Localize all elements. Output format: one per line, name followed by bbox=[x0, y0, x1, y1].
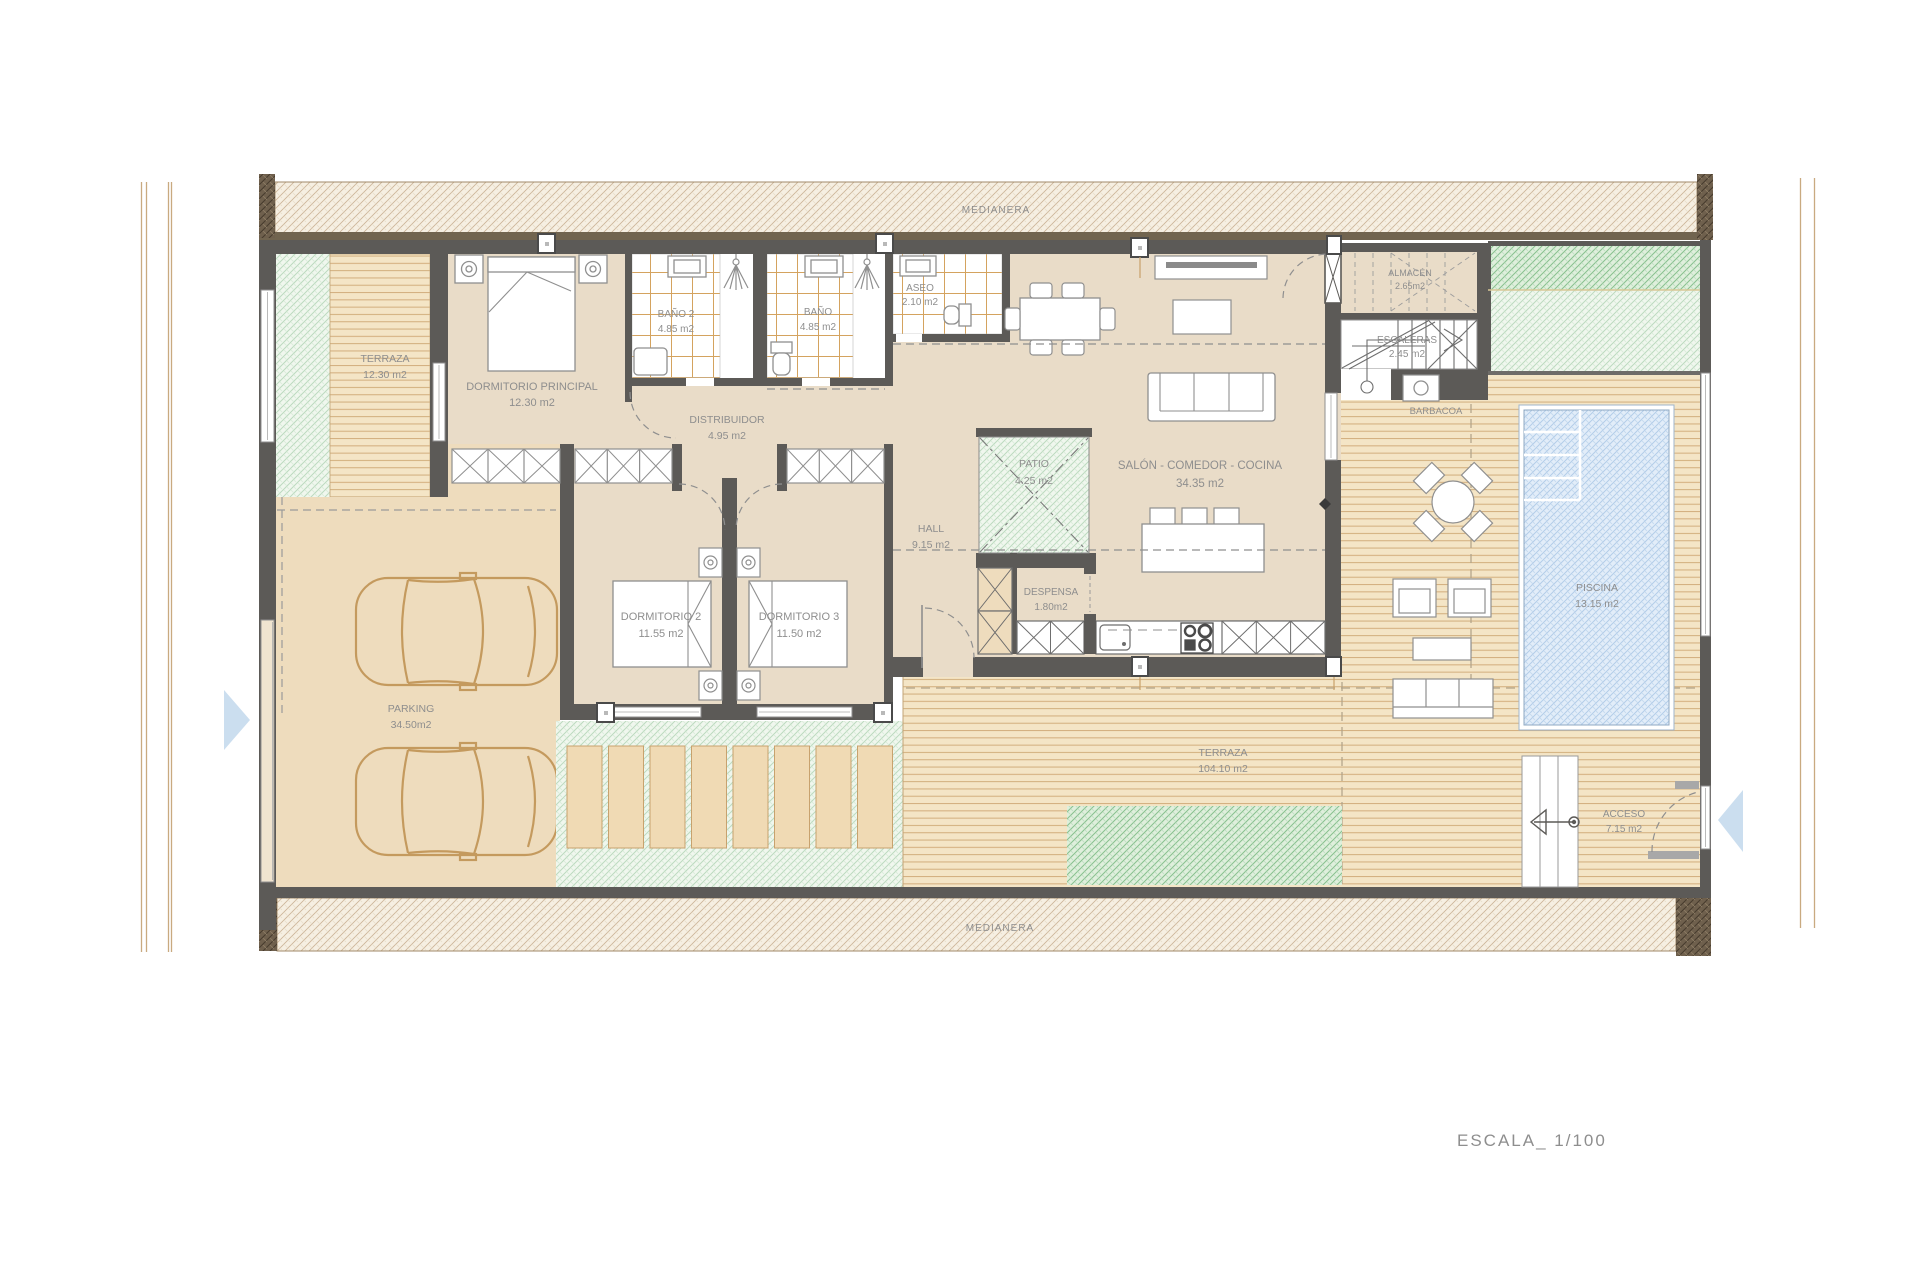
svg-text:DORMITORIO 2: DORMITORIO 2 bbox=[621, 611, 701, 623]
svg-text:13.15 m2: 13.15 m2 bbox=[1575, 598, 1619, 610]
svg-text:MEDIANERA: MEDIANERA bbox=[966, 923, 1034, 934]
svg-text:2.10 m2: 2.10 m2 bbox=[902, 297, 939, 308]
svg-text:34.35 m2: 34.35 m2 bbox=[1176, 478, 1224, 490]
svg-text:4.95 m2: 4.95 m2 bbox=[708, 430, 746, 442]
svg-text:2.65m2: 2.65m2 bbox=[1395, 281, 1425, 291]
svg-text:7.15 m2: 7.15 m2 bbox=[1606, 824, 1643, 835]
svg-text:DORMITORIO 3: DORMITORIO 3 bbox=[759, 611, 839, 623]
svg-text:12.30 m2: 12.30 m2 bbox=[509, 397, 555, 409]
svg-text:BAÑO 2: BAÑO 2 bbox=[658, 307, 695, 320]
svg-text:BARBACOA: BARBACOA bbox=[1410, 406, 1463, 417]
svg-text:34.50m2: 34.50m2 bbox=[391, 719, 432, 731]
svg-text:DESPENSA: DESPENSA bbox=[1024, 587, 1079, 598]
svg-text:PARKING: PARKING bbox=[388, 703, 434, 715]
svg-text:12.30 m2: 12.30 m2 bbox=[363, 369, 407, 381]
svg-text:4.85 m2: 4.85 m2 bbox=[658, 324, 695, 335]
svg-text:PISCINA: PISCINA bbox=[1576, 582, 1618, 594]
svg-text:TERRAZA: TERRAZA bbox=[360, 353, 409, 365]
svg-text:HALL: HALL bbox=[918, 523, 944, 535]
svg-text:ESCALA_ 1/100: ESCALA_ 1/100 bbox=[1457, 1131, 1607, 1150]
svg-text:4.25 m2: 4.25 m2 bbox=[1015, 475, 1053, 487]
svg-text:BAÑO: BAÑO bbox=[804, 305, 833, 318]
svg-text:4.85 m2: 4.85 m2 bbox=[800, 322, 837, 333]
svg-text:ESCALERAS: ESCALERAS bbox=[1377, 335, 1437, 346]
svg-text:MEDIANERA: MEDIANERA bbox=[962, 205, 1030, 216]
svg-text:PATIO: PATIO bbox=[1019, 458, 1049, 470]
svg-text:ACCESO: ACCESO bbox=[1603, 809, 1645, 820]
svg-text:1.80m2: 1.80m2 bbox=[1034, 602, 1068, 613]
svg-text:ASEO: ASEO bbox=[906, 283, 934, 294]
svg-text:2.45 m2: 2.45 m2 bbox=[1389, 349, 1426, 360]
svg-text:11.55 m2: 11.55 m2 bbox=[638, 628, 683, 640]
svg-text:DISTRIBUIDOR: DISTRIBUIDOR bbox=[689, 414, 765, 426]
svg-text:11.50 m2: 11.50 m2 bbox=[776, 628, 821, 640]
svg-text:TERRAZA: TERRAZA bbox=[1198, 747, 1247, 759]
svg-text:SALÓN - COMEDOR - COCINA: SALÓN - COMEDOR - COCINA bbox=[1118, 459, 1283, 472]
svg-text:9.15 m2: 9.15 m2 bbox=[912, 539, 950, 551]
svg-text:DORMITORIO PRINCIPAL: DORMITORIO PRINCIPAL bbox=[466, 381, 598, 393]
svg-text:104.10 m2: 104.10 m2 bbox=[1198, 763, 1248, 775]
svg-text:ALMACÉN: ALMACÉN bbox=[1388, 268, 1432, 278]
